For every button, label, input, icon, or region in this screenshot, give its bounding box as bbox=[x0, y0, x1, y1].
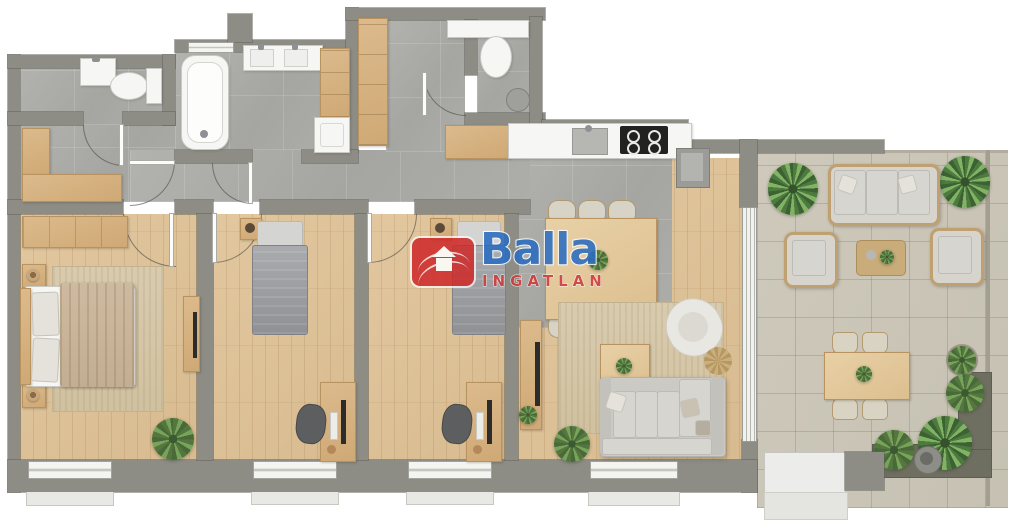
mug bbox=[327, 445, 336, 454]
plant bbox=[554, 426, 590, 462]
terrace-chair bbox=[832, 397, 858, 420]
vanity-sink bbox=[250, 49, 274, 67]
dresser bbox=[183, 296, 200, 372]
sofa-backrest bbox=[602, 438, 712, 455]
fridge-front bbox=[681, 153, 703, 181]
watermark: Balla INGATLAN bbox=[408, 230, 708, 294]
vanity-sink bbox=[284, 49, 308, 67]
wall bbox=[8, 200, 123, 214]
tv bbox=[535, 342, 540, 406]
mug bbox=[473, 445, 482, 454]
plant bbox=[856, 366, 872, 382]
toilet-bowl bbox=[110, 72, 148, 100]
wall bbox=[355, 214, 368, 460]
cooktop bbox=[620, 126, 668, 154]
keyboard bbox=[476, 412, 484, 440]
house-body bbox=[436, 258, 452, 271]
kitchen-counter-wood bbox=[445, 125, 510, 159]
faucet bbox=[585, 125, 592, 132]
pillow bbox=[257, 221, 303, 248]
armchair-cushion bbox=[792, 240, 826, 276]
door-leaf-wc2 bbox=[423, 73, 426, 115]
lamp bbox=[245, 223, 255, 233]
plant bbox=[616, 358, 632, 374]
keyboard bbox=[330, 412, 338, 440]
door-leaf-hall bbox=[130, 161, 174, 164]
plant bbox=[880, 250, 894, 264]
door-leaf-bedroom-1 bbox=[213, 214, 216, 262]
lamp bbox=[27, 389, 39, 401]
cup bbox=[866, 250, 876, 260]
toilet-cistern bbox=[146, 68, 162, 104]
kitchen-sink bbox=[572, 128, 608, 155]
plant-pot-inner bbox=[920, 452, 933, 465]
brand-subtitle: INGATLAN bbox=[482, 272, 607, 290]
lamp bbox=[27, 269, 39, 281]
wall bbox=[8, 112, 83, 125]
plant bbox=[152, 418, 194, 460]
wall bbox=[740, 140, 757, 207]
plant bbox=[519, 406, 537, 424]
house-icon bbox=[412, 238, 474, 286]
bathtub-drain bbox=[200, 130, 208, 138]
faucet bbox=[258, 44, 264, 50]
wc2-cistern-shelf bbox=[447, 20, 529, 38]
pillow bbox=[695, 420, 711, 436]
wall bbox=[175, 150, 252, 163]
terrace-chair bbox=[862, 397, 888, 420]
blanket bbox=[60, 283, 134, 387]
door-leaf-bedroom-2 bbox=[368, 214, 371, 262]
palm-plant bbox=[768, 163, 818, 215]
pillow bbox=[31, 337, 60, 382]
monitor bbox=[487, 400, 492, 444]
door-leaf-master bbox=[170, 214, 173, 266]
pillow bbox=[31, 292, 60, 337]
window-bedroom-1 bbox=[253, 461, 337, 479]
window-sill bbox=[406, 492, 494, 505]
terrace-step bbox=[764, 492, 848, 520]
armchair-seat bbox=[678, 312, 708, 342]
palm-plant bbox=[940, 156, 990, 208]
window-living bbox=[590, 461, 678, 479]
potted-plant bbox=[948, 346, 976, 374]
sofa-cushion bbox=[657, 391, 680, 438]
window-sill bbox=[588, 492, 680, 506]
faucet bbox=[92, 57, 100, 62]
sofa-armrest bbox=[711, 377, 724, 455]
wall bbox=[260, 200, 368, 214]
window-sill bbox=[251, 492, 339, 505]
wall-chimney-stub bbox=[228, 14, 252, 42]
wardrobe bbox=[22, 216, 128, 248]
brand-name: Balla bbox=[480, 224, 598, 275]
door-leaf-bathroom bbox=[249, 163, 252, 203]
single-bed bbox=[252, 245, 308, 335]
toilet-bowl bbox=[480, 36, 512, 78]
sofa-cushion bbox=[866, 170, 898, 215]
pouf bbox=[704, 347, 732, 375]
wall bbox=[123, 112, 175, 125]
headboard bbox=[20, 288, 31, 385]
plant bbox=[946, 374, 984, 412]
window-master bbox=[28, 461, 112, 479]
faucet bbox=[292, 44, 298, 50]
entry-bench bbox=[22, 174, 122, 202]
armchair-cushion bbox=[938, 236, 972, 274]
sofa-cushion bbox=[635, 391, 658, 438]
wall bbox=[415, 200, 530, 214]
entry-console bbox=[22, 128, 50, 176]
floor-plan: Balla INGATLAN bbox=[0, 0, 1024, 529]
pillow bbox=[679, 397, 700, 418]
monitor bbox=[341, 400, 346, 444]
window-sill bbox=[26, 492, 114, 506]
door-leaf-wc1 bbox=[120, 125, 123, 165]
wall bbox=[530, 17, 542, 134]
tall-wardrobe bbox=[358, 18, 388, 146]
terrace-glass-panel bbox=[764, 452, 846, 494]
washing-machine-door bbox=[320, 123, 344, 147]
burner bbox=[627, 142, 640, 155]
house-roof bbox=[432, 246, 456, 257]
burner bbox=[648, 142, 661, 155]
window-bedroom-2 bbox=[408, 461, 492, 479]
wall bbox=[175, 200, 213, 214]
terrace-pillar bbox=[845, 452, 884, 490]
window-bathroom bbox=[188, 42, 234, 53]
wc2-sink bbox=[506, 88, 530, 112]
bathroom-cabinet bbox=[320, 48, 350, 118]
tv bbox=[193, 312, 197, 358]
sliding-door-terrace bbox=[742, 207, 757, 442]
